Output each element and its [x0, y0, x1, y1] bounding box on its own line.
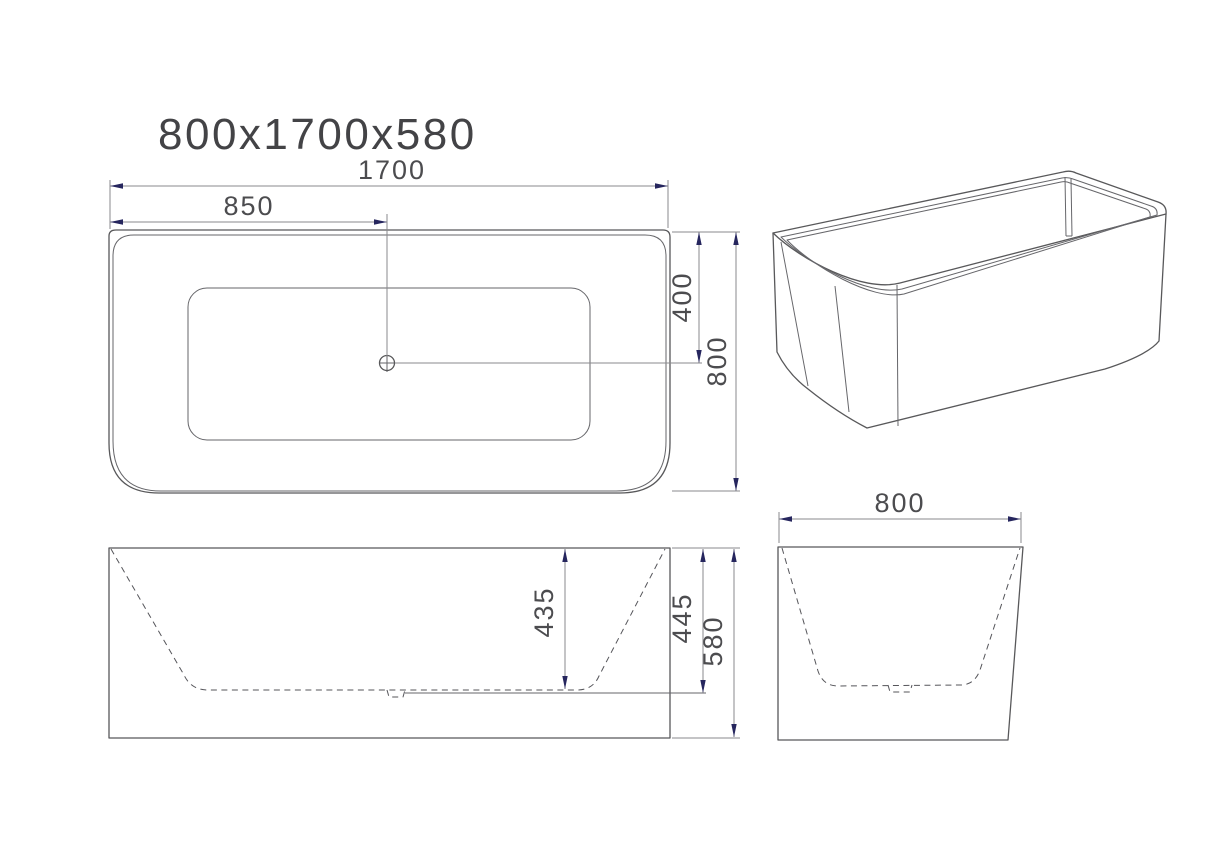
dim-435: 435: [529, 549, 568, 689]
arrowhead-up: [562, 549, 567, 562]
bathtub-dimension-drawing: 800x1700x580 1700 850: [0, 0, 1214, 858]
dim-label-drain-from-back: 400: [667, 271, 697, 322]
dim-label-basin-depth: 435: [529, 586, 559, 637]
dim-400: 400: [395, 232, 740, 363]
arrowhead-up: [700, 549, 705, 562]
side-drain-recess: [888, 685, 912, 692]
arrowhead-right: [655, 183, 668, 188]
front-drain-recess: [387, 690, 405, 697]
technical-drawing-page: 800x1700x580 1700 850: [0, 0, 1214, 858]
arrowhead-down: [562, 676, 567, 689]
perspective-view: [773, 171, 1166, 428]
dim-label-overall-height: 580: [698, 615, 728, 666]
arrowhead-right: [1008, 516, 1021, 521]
arrowhead-down: [696, 350, 701, 363]
top-view-basin-floor: [188, 288, 590, 440]
interior-corner-seam: [1065, 177, 1066, 236]
drawing-title: 800x1700x580: [158, 110, 477, 159]
dim-label-drain-from-left: 850: [223, 191, 274, 221]
arrowhead-up: [696, 232, 701, 245]
arrowhead-left: [110, 183, 123, 188]
corner-tangent-edge: [835, 286, 849, 412]
arrowhead-right: [374, 219, 387, 224]
front-view-outline: [109, 548, 670, 738]
side-basin-profile: [782, 548, 1020, 686]
dim-800-side: 800: [779, 488, 1021, 543]
front-basin-profile: [111, 549, 665, 690]
arrowhead-up: [731, 549, 736, 562]
dim-label-length: 1700: [358, 155, 426, 185]
dim-label-drain-depth: 445: [667, 592, 697, 643]
arrowhead-up: [733, 232, 738, 245]
body-silhouette: [773, 214, 1166, 428]
top-view-outer-outline: [109, 230, 670, 493]
corner-tangent-edge: [897, 285, 898, 426]
top-view: 1700 850 400 800: [109, 155, 740, 493]
dim-label-width: 800: [702, 335, 732, 386]
arrowhead-down: [733, 478, 738, 491]
arrowhead-down: [700, 680, 705, 693]
side-view: 800: [778, 488, 1023, 740]
front-view: 435 445 580: [109, 548, 740, 738]
dim-800-top: 800: [672, 232, 740, 491]
dim-label-side-width: 800: [874, 488, 925, 518]
arrowhead-down: [731, 724, 736, 737]
side-view-outline: [778, 547, 1023, 740]
interior-corner-seam: [1071, 179, 1072, 236]
rim-inner-wall-edge: [787, 182, 1150, 295]
dim-850: 850: [110, 191, 387, 356]
rim-outer-edge: [773, 171, 1166, 285]
arrowhead-left: [110, 219, 123, 224]
dim-1700: 1700: [110, 155, 668, 229]
arrowhead-left: [779, 516, 792, 521]
